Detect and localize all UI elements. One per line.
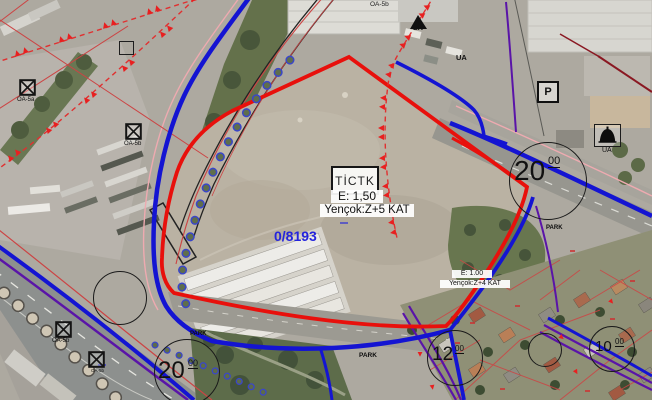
road-width-sup: 00: [188, 359, 198, 369]
emsal-label: E: 1,50: [331, 190, 383, 203]
railway-lines: [150, 0, 338, 264]
empty-annotation-circle-small: [528, 333, 562, 367]
empty-square-symbol: [119, 41, 134, 55]
road-width-sup: 00: [615, 338, 624, 347]
zone-code-text: TİCTK: [335, 174, 375, 188]
road-width-value: 10: [595, 338, 612, 355]
mosque-symbol-box: [594, 124, 621, 147]
parking-letter: P: [544, 86, 551, 98]
road-width-value: 20: [514, 155, 545, 187]
road-width-sup: 00: [455, 345, 464, 354]
parcel-number: 0/8193: [274, 229, 317, 244]
road-width-circle-bottom-center: 12 00: [427, 330, 483, 386]
lk-label: LK: [413, 24, 423, 32]
oa-symbol-icon: [19, 79, 36, 96]
road-edge-line: [514, 0, 544, 136]
park-label: PARK: [546, 225, 563, 232]
zone-label-oa5b-top: OA-5b: [370, 1, 389, 8]
oa-label: OA-5a: [17, 97, 34, 104]
oa-symbol-icon: [88, 351, 105, 368]
oa-symbol-icon: [125, 123, 142, 140]
road-width-circle-right: 20 00: [509, 142, 587, 220]
height-label-secondary: Yençok:Z+4 KAT: [440, 280, 510, 288]
empty-annotation-circle: [93, 271, 147, 325]
park-label: PARK: [359, 352, 377, 359]
park-label: PARK: [190, 331, 207, 338]
maroon-line: [560, 34, 652, 92]
oa-label: OA-5b: [91, 369, 104, 374]
ua-small-label: UA: [456, 54, 467, 62]
oa-symbol-icon: [55, 321, 72, 338]
mosque-label: UA: [602, 147, 612, 155]
road-width-value: 12: [432, 344, 453, 366]
oa-label: OA-5b: [52, 338, 69, 345]
road-width-value: 20: [158, 357, 185, 385]
oa-label: OA-5b: [124, 141, 141, 148]
road-width-circle-bottom-left: 20 00: [154, 339, 220, 400]
zoning-map-canvas[interactable]: OA-5b LK UA P UA TİCTK E: 1,50 Yençok:Z+…: [0, 0, 652, 400]
mosque-dome-icon: [595, 125, 620, 146]
road-width-circle-bottom-right: 10 00: [589, 326, 635, 372]
parking-symbol: P: [537, 81, 559, 103]
height-label: Yençok:Z+5 KAT: [320, 204, 414, 217]
emsal-label-secondary: E: 1.00: [452, 270, 492, 278]
road-width-sup: 00: [548, 156, 560, 168]
